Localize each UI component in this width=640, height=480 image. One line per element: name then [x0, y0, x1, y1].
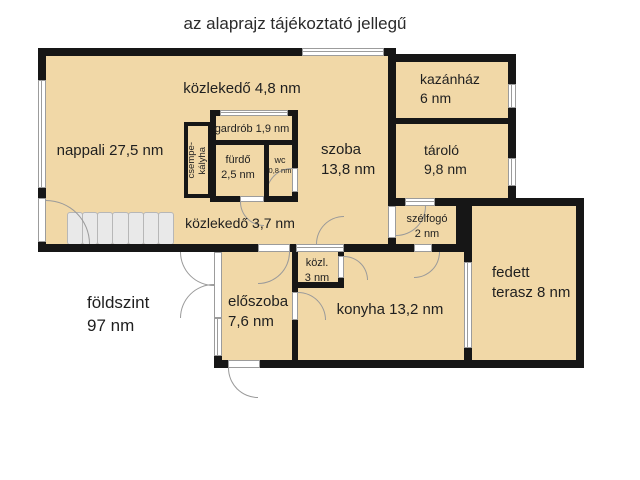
room-label-gardrob: gardrób 1,9 nm	[208, 122, 296, 137]
wall-segment	[435, 198, 584, 206]
room-label-nappali: nappali 27,5 nm	[40, 141, 180, 161]
room-label-eloszoba: előszoba 7,6 nm	[228, 292, 308, 333]
stair-step	[112, 212, 128, 245]
stair-step	[128, 212, 144, 245]
sliding-door	[296, 244, 344, 252]
room-name: előszoba	[228, 292, 308, 312]
stove-label-line2: kályha	[197, 146, 208, 173]
room-label-furdo: fürdő 2,5 nm	[208, 153, 268, 183]
room-name: szoba	[321, 140, 411, 160]
wall-segment	[264, 196, 298, 202]
room-label-konyha: konyha 13,2 nm	[310, 300, 470, 320]
wall-segment	[210, 196, 240, 202]
window	[405, 198, 435, 206]
door-opening	[258, 244, 290, 252]
room-area: 6 nm	[420, 89, 510, 108]
floor-plan: az alaprajz tájékoztató jellegű csempe- …	[0, 0, 640, 480]
wall-segment	[344, 244, 414, 252]
wall-segment	[214, 244, 222, 252]
room-label-szoba: szoba 13,8 nm	[321, 140, 411, 181]
floor-summary-label: földszint 97 nm	[87, 292, 149, 338]
window	[38, 80, 46, 188]
room-area: 2,5 nm	[208, 168, 268, 183]
room-label-kazanhaz: kazánház 6 nm	[420, 70, 510, 108]
door-opening	[214, 252, 222, 318]
door-opening	[414, 244, 432, 252]
room-name: tároló	[424, 141, 514, 160]
room-name: gardrób 1,9 nm	[208, 122, 296, 137]
wall-segment	[388, 198, 405, 206]
room-name: fedett	[492, 263, 582, 283]
room-area: terasz 8 nm	[492, 283, 582, 303]
window	[302, 48, 384, 56]
room-name: nappali 27,5 nm	[40, 141, 180, 161]
window	[214, 318, 222, 356]
floor-total-area: 97 nm	[87, 315, 149, 338]
door-arc	[180, 252, 214, 286]
room-name: közlekedő 4,8 nm	[162, 79, 322, 99]
room-label-fedett-terasz: fedett terasz 8 nm	[492, 263, 582, 304]
floor-name: földszint	[87, 292, 149, 315]
wall-segment	[38, 48, 46, 80]
room-label-kozlekedo-felso: közlekedő 4,8 nm	[162, 79, 322, 99]
room-name: szélfogó	[394, 212, 460, 227]
wall-segment	[38, 188, 46, 198]
wall-segment	[464, 244, 472, 262]
room-label-tarolo: tároló 9,8 nm	[424, 141, 514, 179]
room-label-kozl: közl. 3 nm	[293, 256, 341, 286]
room-name: közl.	[293, 256, 341, 271]
wall-segment	[38, 244, 258, 252]
plan-disclaimer-title: az alaprajz tájékoztató jellegű	[60, 14, 530, 34]
wall-segment	[214, 356, 222, 368]
wall-segment	[38, 48, 302, 56]
room-area: 0,8 nm	[263, 166, 297, 175]
door-arc	[228, 368, 258, 398]
wall-segment	[260, 360, 584, 368]
room-label-kozlekedo-also: közlekedő 3,7 nm	[158, 214, 322, 233]
room-label-szelfogo: szélfogó 2 nm	[394, 212, 460, 242]
room-label-wc: wc 0,8 nm	[263, 155, 297, 176]
door-arc	[180, 284, 214, 318]
room-name: wc	[263, 155, 297, 166]
stove-label-line1: csempe-	[186, 142, 197, 178]
room-area: 2 nm	[394, 227, 460, 242]
room-area: 3 nm	[293, 271, 341, 286]
room-name: kazánház	[420, 70, 510, 89]
door-opening	[240, 196, 264, 202]
room-area: 9,8 nm	[424, 160, 514, 179]
room-name: konyha 13,2 nm	[310, 300, 470, 320]
room-area: 13,8 nm	[321, 160, 411, 180]
window	[220, 110, 288, 116]
room-area: 7,6 nm	[228, 312, 308, 332]
wall-segment	[388, 54, 516, 62]
door-opening	[38, 198, 46, 242]
room-name: közlekedő 3,7 nm	[158, 214, 322, 233]
room-name: fürdő	[208, 153, 268, 168]
wall-segment	[210, 140, 298, 145]
stair-step	[143, 212, 159, 245]
door-opening	[228, 360, 260, 368]
wall-segment	[396, 118, 508, 124]
stair-step	[97, 212, 113, 245]
room-label-csempekalyha: csempe- kályha	[187, 142, 209, 178]
